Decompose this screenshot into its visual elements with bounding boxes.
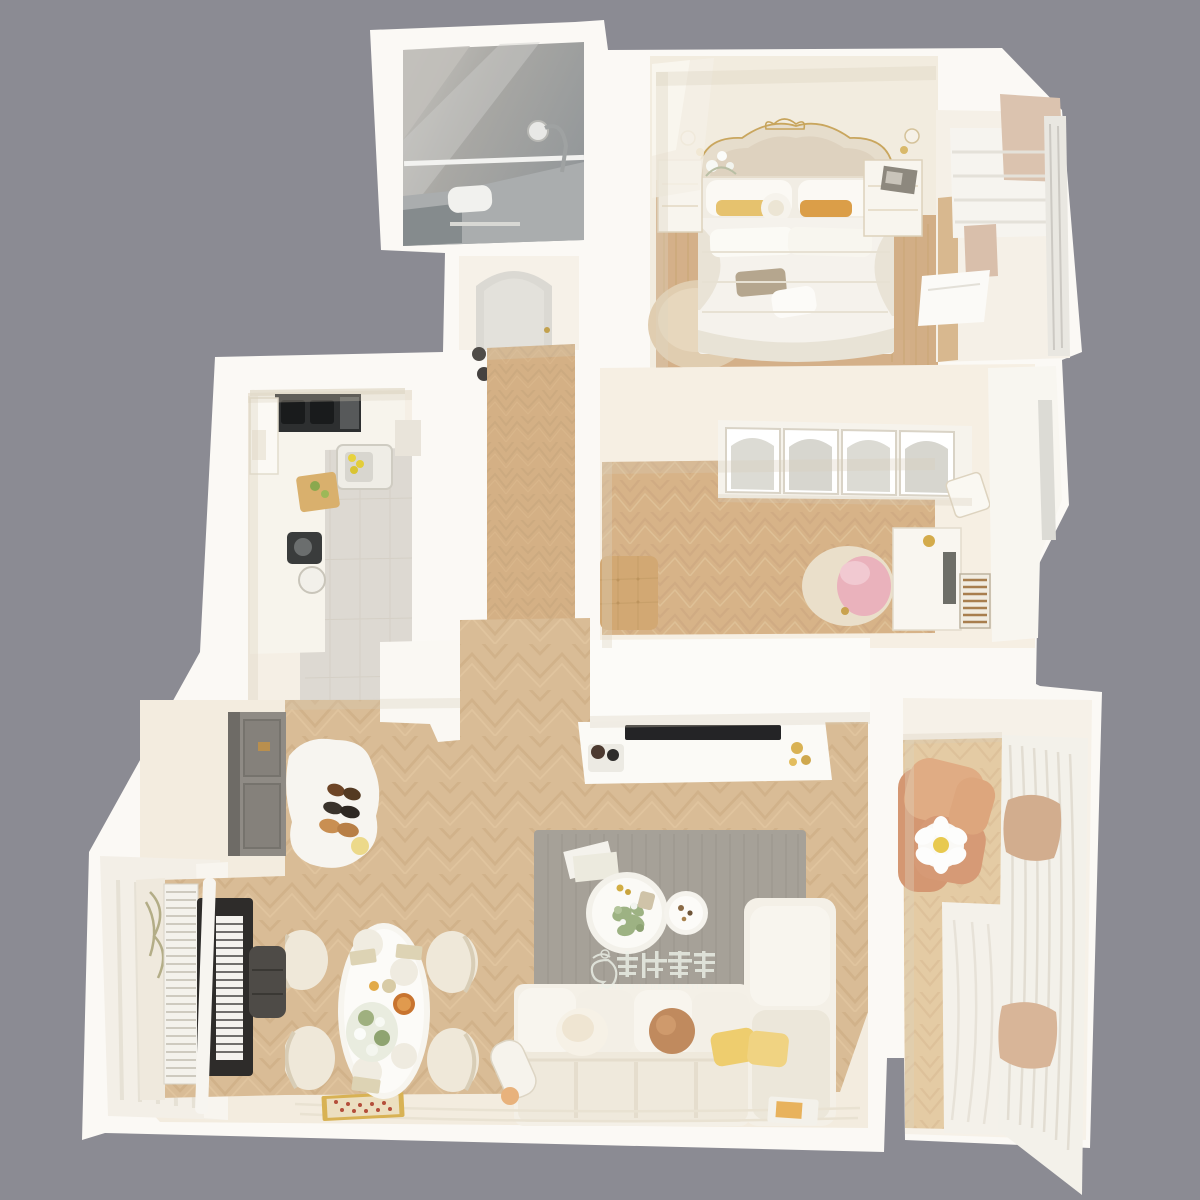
svg-text:HONG NIU DECORATION: HONG NIU DECORATION bbox=[597, 984, 714, 991]
